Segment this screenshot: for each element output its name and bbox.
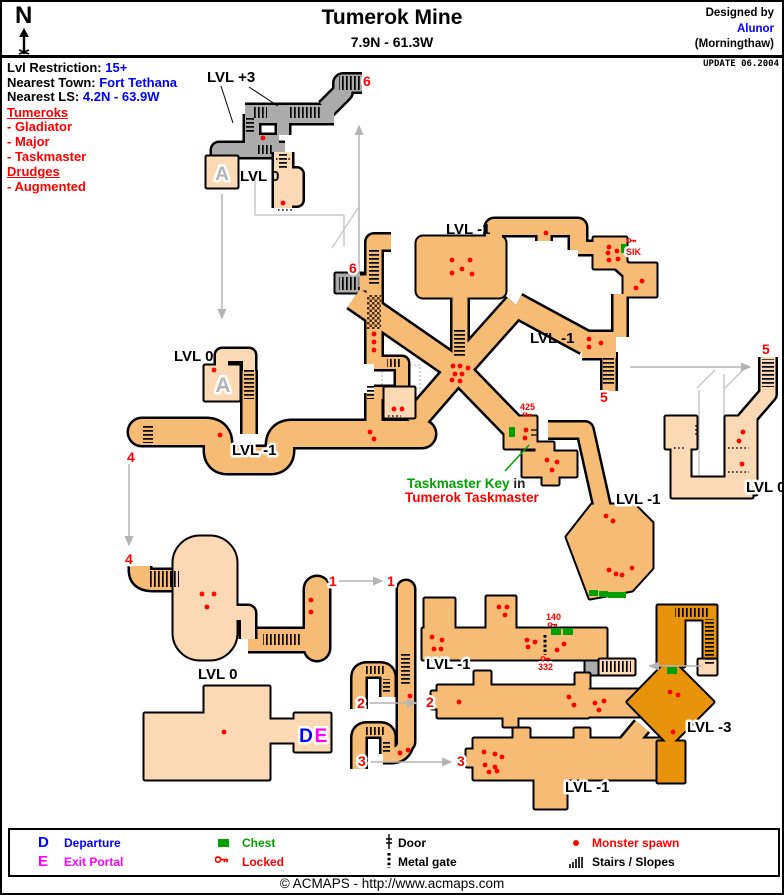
chest-label: Chest (242, 836, 275, 850)
portal-number: 6 (363, 73, 371, 89)
designed-by-label: Designed by (695, 6, 774, 22)
nearest-ls-label: Nearest LS: (7, 89, 79, 104)
monster-spawn (458, 364, 463, 369)
locked-label: Locked (242, 855, 284, 869)
monster-spawn (432, 647, 437, 652)
tumerok-type: - Major (7, 135, 177, 150)
monster-spawn (450, 378, 455, 383)
monster-spawn (587, 337, 592, 342)
monster-spawn (604, 514, 609, 519)
monster-spawn (533, 640, 538, 645)
chest (608, 592, 617, 598)
key-label: 425 (520, 402, 535, 412)
monster-spawn (505, 605, 510, 610)
page-title: Tumerok Mine (2, 6, 782, 30)
room-letter: A (215, 374, 230, 397)
monster-spawn (439, 647, 444, 652)
chest (563, 628, 573, 635)
monster-spawn (668, 690, 673, 695)
monster-spawn (408, 694, 413, 699)
monster-spawn-label: Monster spawn (592, 836, 679, 850)
chest (551, 628, 561, 635)
map-legend: D Departure E Exit Portal Chest Locked D… (8, 828, 780, 877)
monster-spawn (440, 638, 445, 643)
monster-spawn (607, 258, 612, 263)
chest-icon (217, 838, 231, 848)
chest (617, 592, 626, 598)
monster-spawn (450, 258, 455, 263)
key-label: 332 (538, 662, 553, 672)
monster-spawn (200, 592, 205, 597)
monster-spawn (634, 286, 639, 291)
room-letter: A (215, 164, 229, 185)
monster-spawn (616, 257, 621, 262)
slope-hatch (367, 295, 381, 329)
level-label: LVL -1 (426, 656, 470, 673)
monster-spawn (562, 642, 567, 647)
drudges-heading: Drudges (7, 165, 177, 180)
monster-spawn (550, 468, 555, 473)
monster-spawn (615, 249, 620, 254)
lvl-restriction-value: 15+ (105, 60, 127, 75)
level-label: LVL -1 (232, 442, 276, 459)
monster-spawn (460, 372, 465, 377)
monster-spawn (487, 770, 492, 775)
tumerok-type: - Taskmaster (7, 150, 177, 165)
monster-spawn (676, 693, 681, 698)
portal-number: 3 (457, 753, 465, 769)
portal-number: 4 (125, 551, 133, 567)
monster-spawn (212, 368, 217, 373)
level-label: LVL -1 (616, 491, 660, 508)
monster-spawn (526, 645, 531, 650)
portal-number: 2 (426, 694, 434, 710)
level-label: LVL 0 (746, 479, 784, 496)
monster-spawn (372, 348, 377, 353)
monster-spawn (503, 613, 508, 618)
monster-spawn (555, 460, 560, 465)
designer-credit: Designed by Alunor (Morningthaw) (695, 6, 774, 53)
monster-spawn (599, 341, 604, 346)
monster-spawn (587, 345, 592, 350)
monster-spawn (281, 201, 286, 206)
monster-spawn (614, 572, 619, 577)
level-label: LVL -1 (530, 330, 574, 347)
monster-spawn (392, 407, 397, 412)
tumerok-type: - Gladiator (7, 120, 177, 135)
designer-name: Alunor (695, 22, 774, 38)
portal-number: 6 (349, 260, 357, 276)
monster-spawn (218, 433, 223, 438)
update-date: UPDATE 06.2004 (703, 59, 779, 69)
level-label: LVL +3 (207, 69, 255, 86)
nearest-town-value: Fort Tethana (99, 75, 177, 90)
monster-spawn (671, 730, 676, 735)
acmaps-dungeon-map-page: Taskmaster Key in Tumerok Taskmaster SIK… (0, 0, 784, 895)
level-label: LVL -1 (446, 221, 490, 238)
monster-spawn (372, 437, 377, 442)
monster-spawn (468, 258, 473, 263)
tumeroks-heading: Tumeroks (7, 106, 177, 121)
level-label: LVL -1 (565, 779, 609, 796)
chest (599, 591, 608, 597)
portal-number: 1 (387, 573, 395, 589)
monster-spawn (544, 231, 549, 236)
portal-number: 2 (357, 695, 365, 711)
drudge-type: - Augmented (7, 180, 177, 195)
monster-spawn (572, 703, 577, 708)
metal-gate-label: Metal gate (398, 855, 457, 869)
monster-spawn (458, 379, 463, 384)
monster-spawn (470, 272, 475, 277)
lvl-restriction-label: Lvl Restriction: (7, 60, 102, 75)
locked-icon (215, 856, 231, 866)
monster-spawn (460, 267, 465, 272)
monster-spawn (261, 136, 266, 141)
monster-spawn (212, 592, 217, 597)
monster-spawn (593, 701, 598, 706)
stairs-legend-icon (568, 855, 586, 869)
monster-spawn (545, 458, 550, 463)
portal-number: 5 (762, 341, 770, 357)
monster-spawn (309, 598, 314, 603)
portal-number: 5 (600, 389, 608, 405)
monster-spawn (398, 751, 403, 756)
monster-spawn (500, 755, 505, 760)
monster-spawn (372, 332, 377, 337)
room-letter: D (299, 726, 313, 747)
monster-spawn (607, 568, 612, 573)
key-label: 140 (546, 612, 561, 622)
monster-spawn (611, 519, 616, 524)
monster-spawn (406, 748, 411, 753)
monster-spawn (457, 700, 462, 705)
monster-spawn-icon (570, 837, 582, 849)
chest (589, 590, 598, 596)
monster-spawn (606, 251, 611, 256)
monster-spawn (400, 407, 405, 412)
monster-spawn (640, 279, 645, 284)
taskmaster-key-note-room: Tumerok Taskmaster (405, 490, 540, 505)
portal-number: 4 (127, 449, 135, 465)
monster-spawn (451, 364, 456, 369)
monster-spawn (309, 610, 314, 615)
monster-spawn (737, 439, 742, 444)
monster-spawn (368, 430, 373, 435)
map-header: N Tumerok Mine 7.9N - 61.3W Designed by … (2, 2, 782, 58)
chest (667, 667, 677, 674)
nearest-town-label: Nearest Town: (7, 75, 96, 90)
departure-letter: D (38, 834, 49, 851)
monster-spawn (493, 752, 498, 757)
monster-spawn (372, 340, 377, 345)
room-letter: E (315, 726, 328, 747)
monster-spawn (450, 271, 455, 276)
monster-spawn (523, 436, 528, 441)
monster-spawn (567, 695, 572, 700)
monster-spawn (453, 372, 458, 377)
door-label: Door (398, 836, 426, 850)
stairs-label: Stairs / Slopes (592, 855, 675, 869)
monster-spawn (607, 245, 612, 250)
departure-label: Departure (64, 836, 121, 850)
portal-number: 3 (358, 753, 366, 769)
monster-spawn (740, 462, 745, 467)
monster-spawn (741, 430, 746, 435)
key-label: SIK (626, 247, 642, 257)
dungeon-info-panel: Lvl Restriction: 15+ Nearest Town: Fort … (7, 61, 177, 194)
monster-spawn (524, 428, 529, 433)
monster-spawn (497, 605, 502, 610)
level-label: LVL 0 (198, 666, 237, 683)
monster-spawn (630, 566, 635, 571)
designer-world: (Morningthaw) (695, 37, 774, 53)
monster-spawn (222, 730, 227, 735)
exit-portal-label: Exit Portal (64, 855, 123, 869)
map-coordinates: 7.9N - 61.3W (2, 34, 782, 50)
chest (509, 427, 515, 437)
monster-spawn (483, 763, 488, 768)
monster-spawn (602, 699, 607, 704)
copyright-footer: © ACMAPS - http://www.acmaps.com (2, 876, 782, 891)
level-label: LVL 0 (240, 168, 279, 185)
monster-spawn (205, 605, 210, 610)
monster-spawn (482, 750, 487, 755)
portal-number: 1 (329, 573, 337, 589)
level-label: LVL -3 (687, 719, 731, 736)
monster-spawn (466, 366, 471, 371)
metal-gate-legend-icon (382, 852, 396, 869)
level-label: LVL 0 (174, 348, 213, 365)
monster-spawn (597, 708, 602, 713)
exit-portal-letter: E (38, 853, 48, 870)
monster-spawn (620, 573, 625, 578)
taskmaster-key-note: Taskmaster Key in (407, 476, 525, 491)
monster-spawn (555, 648, 560, 653)
monster-spawn (525, 638, 530, 643)
nearest-ls-value: 4.2N - 63.9W (83, 89, 160, 104)
locked-key-icon (627, 239, 636, 243)
locked-key-icon (548, 623, 557, 627)
monster-spawn (430, 635, 435, 640)
monster-spawn (495, 769, 500, 774)
door-legend-icon (382, 833, 396, 850)
